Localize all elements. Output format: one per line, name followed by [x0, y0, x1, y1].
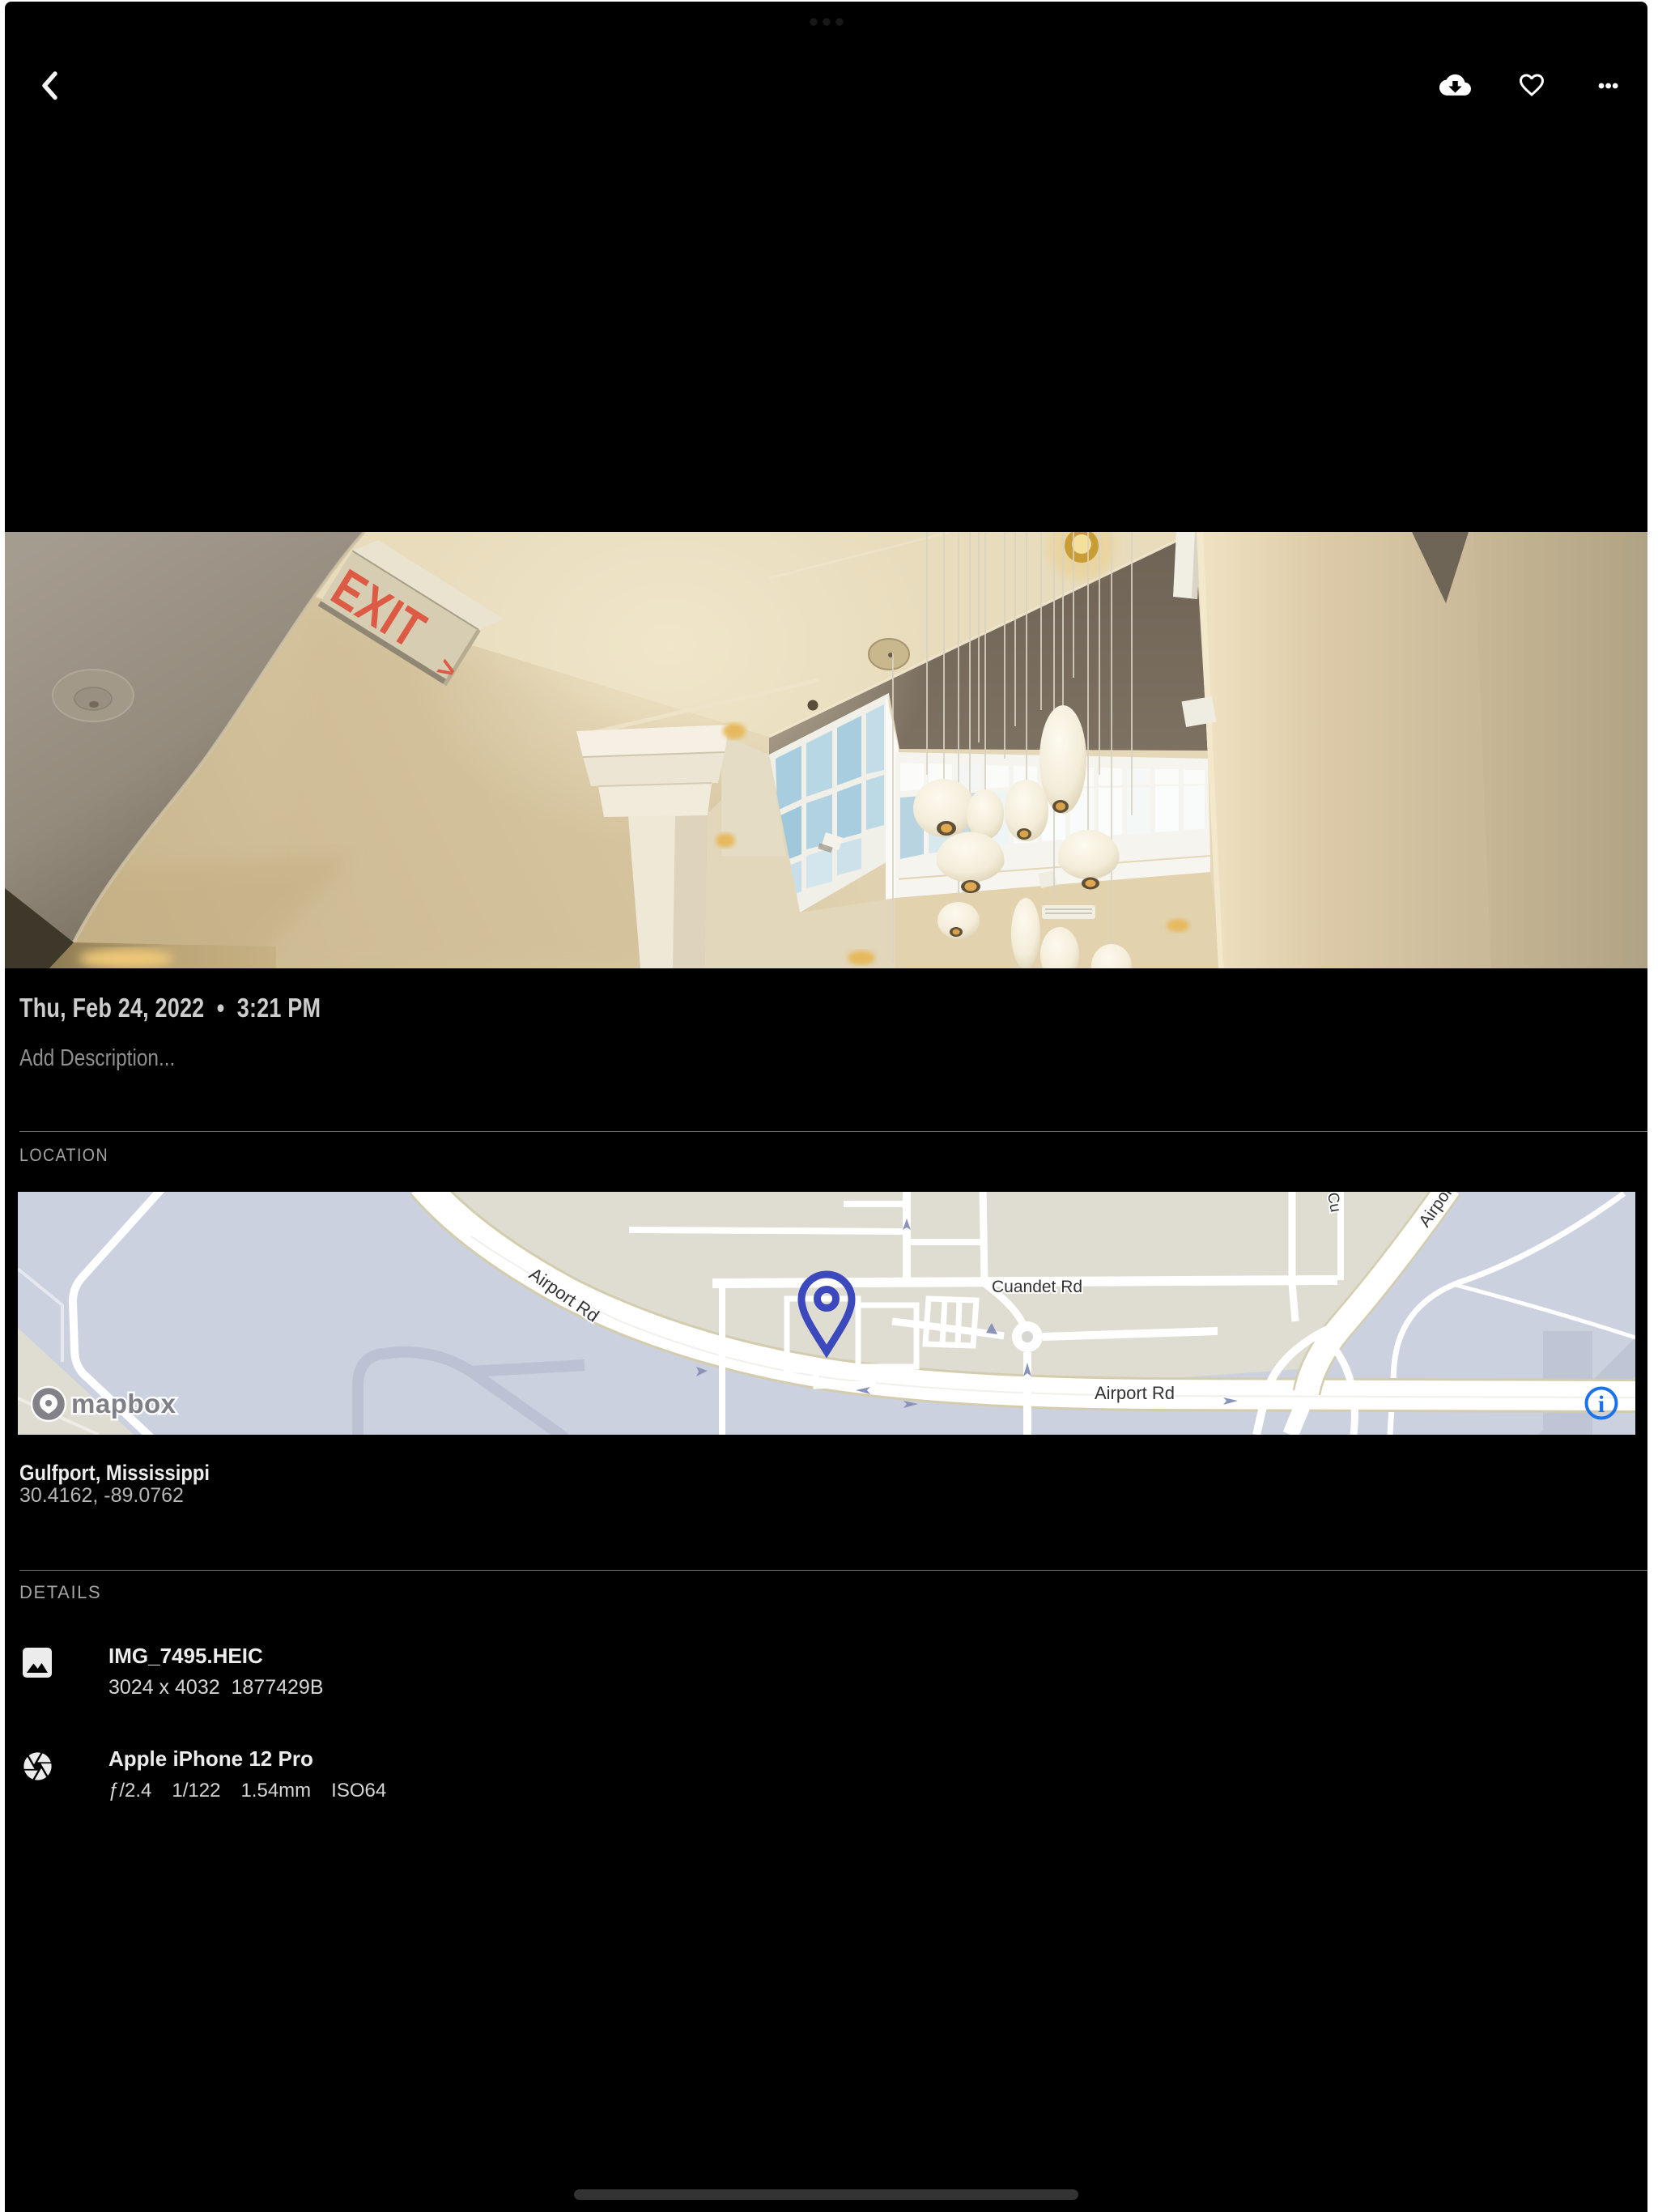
svg-text:Cuandet Rd: Cuandet Rd — [992, 1278, 1082, 1296]
svg-text:Cu: Cu — [1324, 1192, 1344, 1214]
svg-text:i: i — [1598, 1391, 1605, 1418]
svg-text:mapbox: mapbox — [71, 1389, 176, 1419]
svg-text:Airport Rd: Airport Rd — [1095, 1383, 1175, 1403]
